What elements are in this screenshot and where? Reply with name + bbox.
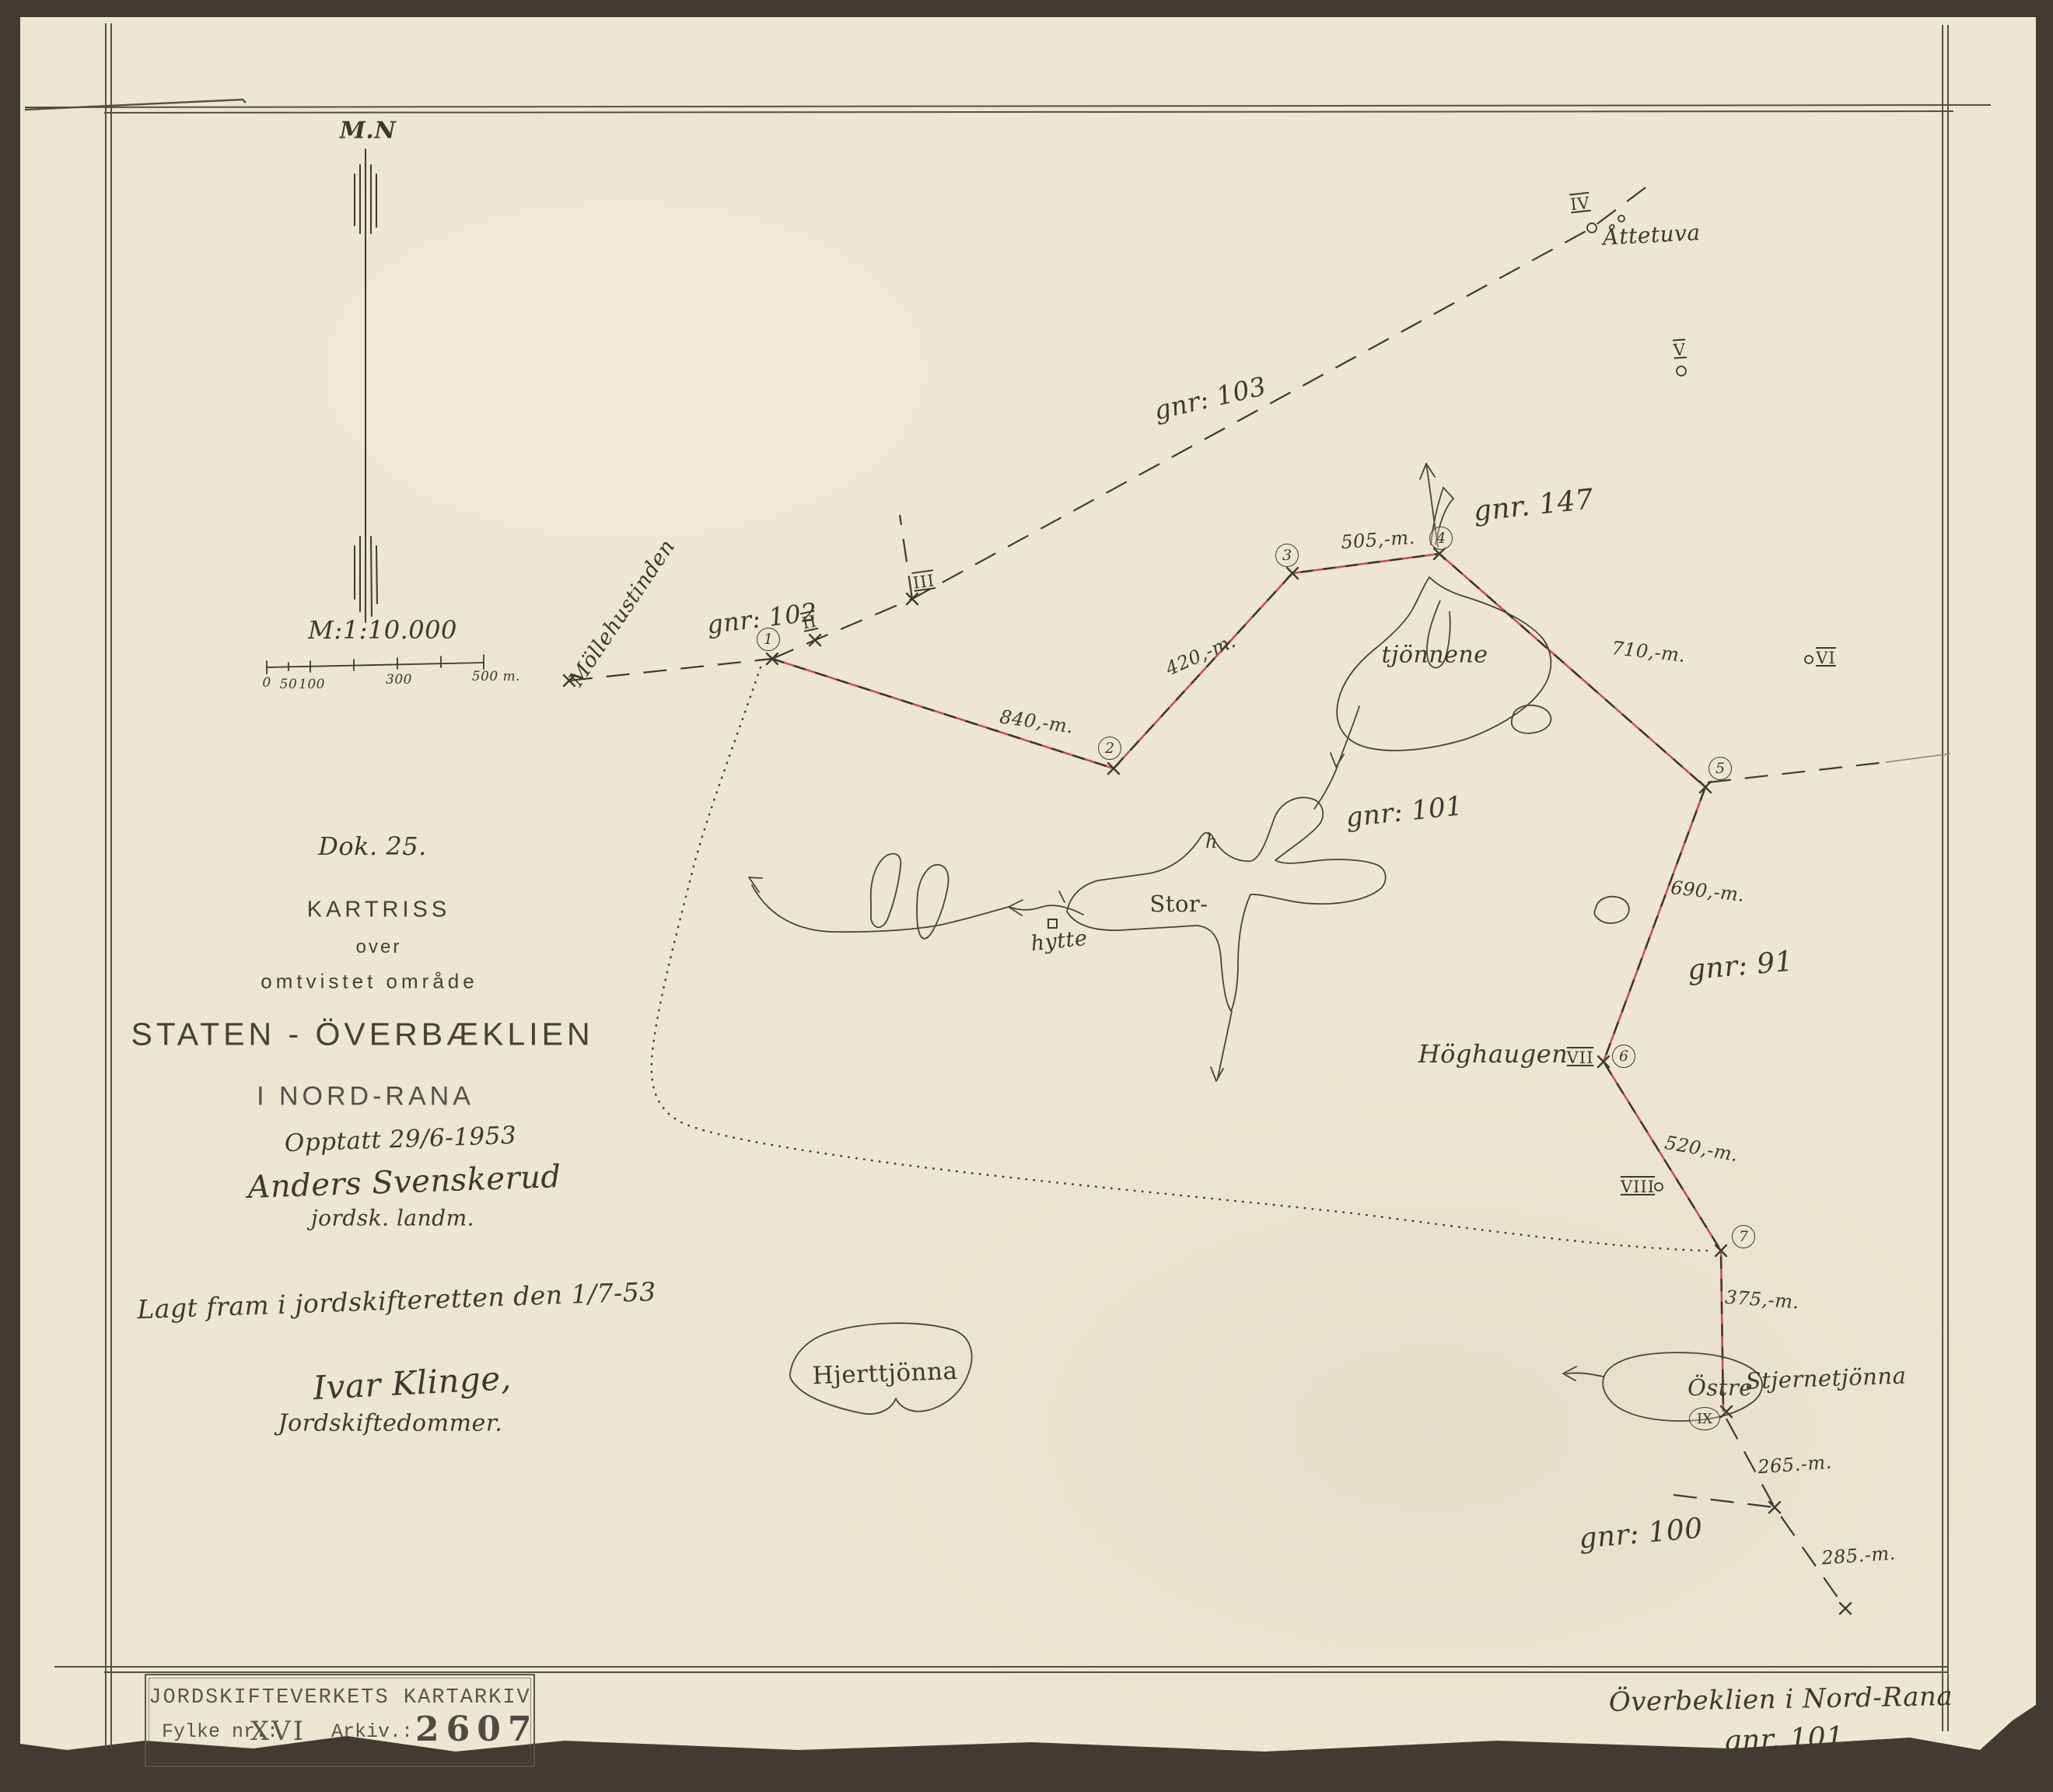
- point-7-label: 7: [1739, 1228, 1748, 1245]
- lake-stor: [1067, 797, 1386, 1011]
- disputed-boundary-red: [772, 554, 1723, 1412]
- flow-arrow-west-1: [1009, 900, 1023, 915]
- title-heading: KARTRISS: [307, 898, 451, 923]
- point-3: 3: [1275, 544, 1299, 567]
- point-3-label: 3: [1282, 547, 1292, 564]
- stamp-arkiv-number: 2607: [415, 1710, 538, 1749]
- place-hoghaugen: Höghaugen: [1418, 1039, 1568, 1069]
- footer-name: Överbeklien i Nord-Rana: [1609, 1681, 1953, 1718]
- mark-V: V: [1673, 340, 1687, 359]
- place-h: h: [1205, 831, 1218, 852]
- place-stor: Stor-: [1149, 891, 1208, 917]
- scale-tick-50: 50: [280, 677, 298, 692]
- scale-label: M:1:10.000: [308, 615, 457, 645]
- doc-number: Dok. 25.: [318, 831, 427, 861]
- point-1: 1: [757, 628, 780, 651]
- point-2-label: 2: [1105, 740, 1114, 757]
- archive-stamp: JORDSKIFTEVERKETS KARTARKIV Fylke nr.: X…: [145, 1674, 535, 1767]
- mark-VII: VII: [1567, 1048, 1594, 1067]
- scanned-map-photo: M.N M:1:10.000 0 50 100 300 500 m. Dok. …: [0, 0, 2053, 1792]
- title-sub2: omtvistet område: [261, 970, 477, 994]
- lakes: [790, 577, 1762, 1421]
- stream-fork-tick: [1059, 891, 1065, 902]
- streams: [749, 464, 1604, 1381]
- point-2: 2: [1098, 737, 1121, 760]
- scale-tick-300: 300: [386, 672, 412, 688]
- mark-III: III: [912, 571, 936, 593]
- archive-stamp-title: JORDSKIFTEVERKETS KARTARKIV: [146, 1686, 533, 1710]
- footer-gnr: gnr. 101.: [1723, 1721, 1854, 1758]
- point-6-label: 6: [1619, 1048, 1628, 1065]
- mark-IV: IV: [1569, 194, 1591, 215]
- pencil-line: [1886, 754, 1950, 762]
- point-5: 5: [1709, 757, 1732, 780]
- stray-pen-line: [25, 100, 246, 110]
- point-1-label: 1: [764, 631, 773, 648]
- point-7: 7: [1732, 1225, 1755, 1248]
- survey-x-marks: [564, 548, 1851, 1614]
- map-drawing: [0, 0, 2053, 1792]
- scale-bar: [267, 655, 484, 674]
- place-hjerttjonna: Hjerttjönna: [812, 1357, 958, 1391]
- judge-title: Jordskiftedommer.: [278, 1410, 503, 1437]
- hut-symbol: [1048, 919, 1057, 928]
- mark-VIII: VIII: [1621, 1178, 1655, 1196]
- stamp-fylke-value: XVI: [250, 1716, 306, 1747]
- point-4: 4: [1429, 527, 1453, 550]
- point-IX-label: IX: [1697, 1411, 1712, 1427]
- point-IX: IX: [1689, 1407, 1720, 1430]
- mark-VI: VI: [1816, 649, 1835, 667]
- dotted-boundary: [652, 667, 1707, 1251]
- stamp-arkiv-label: Arkiv.:: [331, 1720, 413, 1743]
- place-stjernetjonna: Stjernetjönna: [1745, 1362, 1907, 1394]
- point-4-label: 4: [1436, 530, 1446, 547]
- flow-arrow-south-2: [1211, 1067, 1223, 1081]
- small-pond: [1594, 897, 1628, 923]
- surveyor-title: jordsk. landm.: [311, 1206, 474, 1231]
- point-6: 6: [1612, 1045, 1635, 1068]
- point-5-label: 5: [1715, 760, 1725, 777]
- north-label: M.N: [340, 117, 397, 145]
- scale-tick-100: 100: [299, 677, 325, 692]
- small-lake: [1512, 705, 1551, 733]
- place-ostre: Östre: [1688, 1374, 1753, 1401]
- title-region: I NORD-RANA: [257, 1082, 474, 1112]
- title-sub1: over: [356, 936, 402, 958]
- scale-tick-500: 500 m.: [472, 669, 520, 684]
- scale-tick-0: 0: [262, 675, 271, 691]
- place-tjonnene: tjönnene: [1382, 642, 1488, 669]
- place-attetuva: Åttetuva: [1603, 219, 1702, 250]
- north-arrow: [355, 149, 377, 622]
- title-main: STATEN - ÖVERBÆKLIEN: [131, 1017, 593, 1053]
